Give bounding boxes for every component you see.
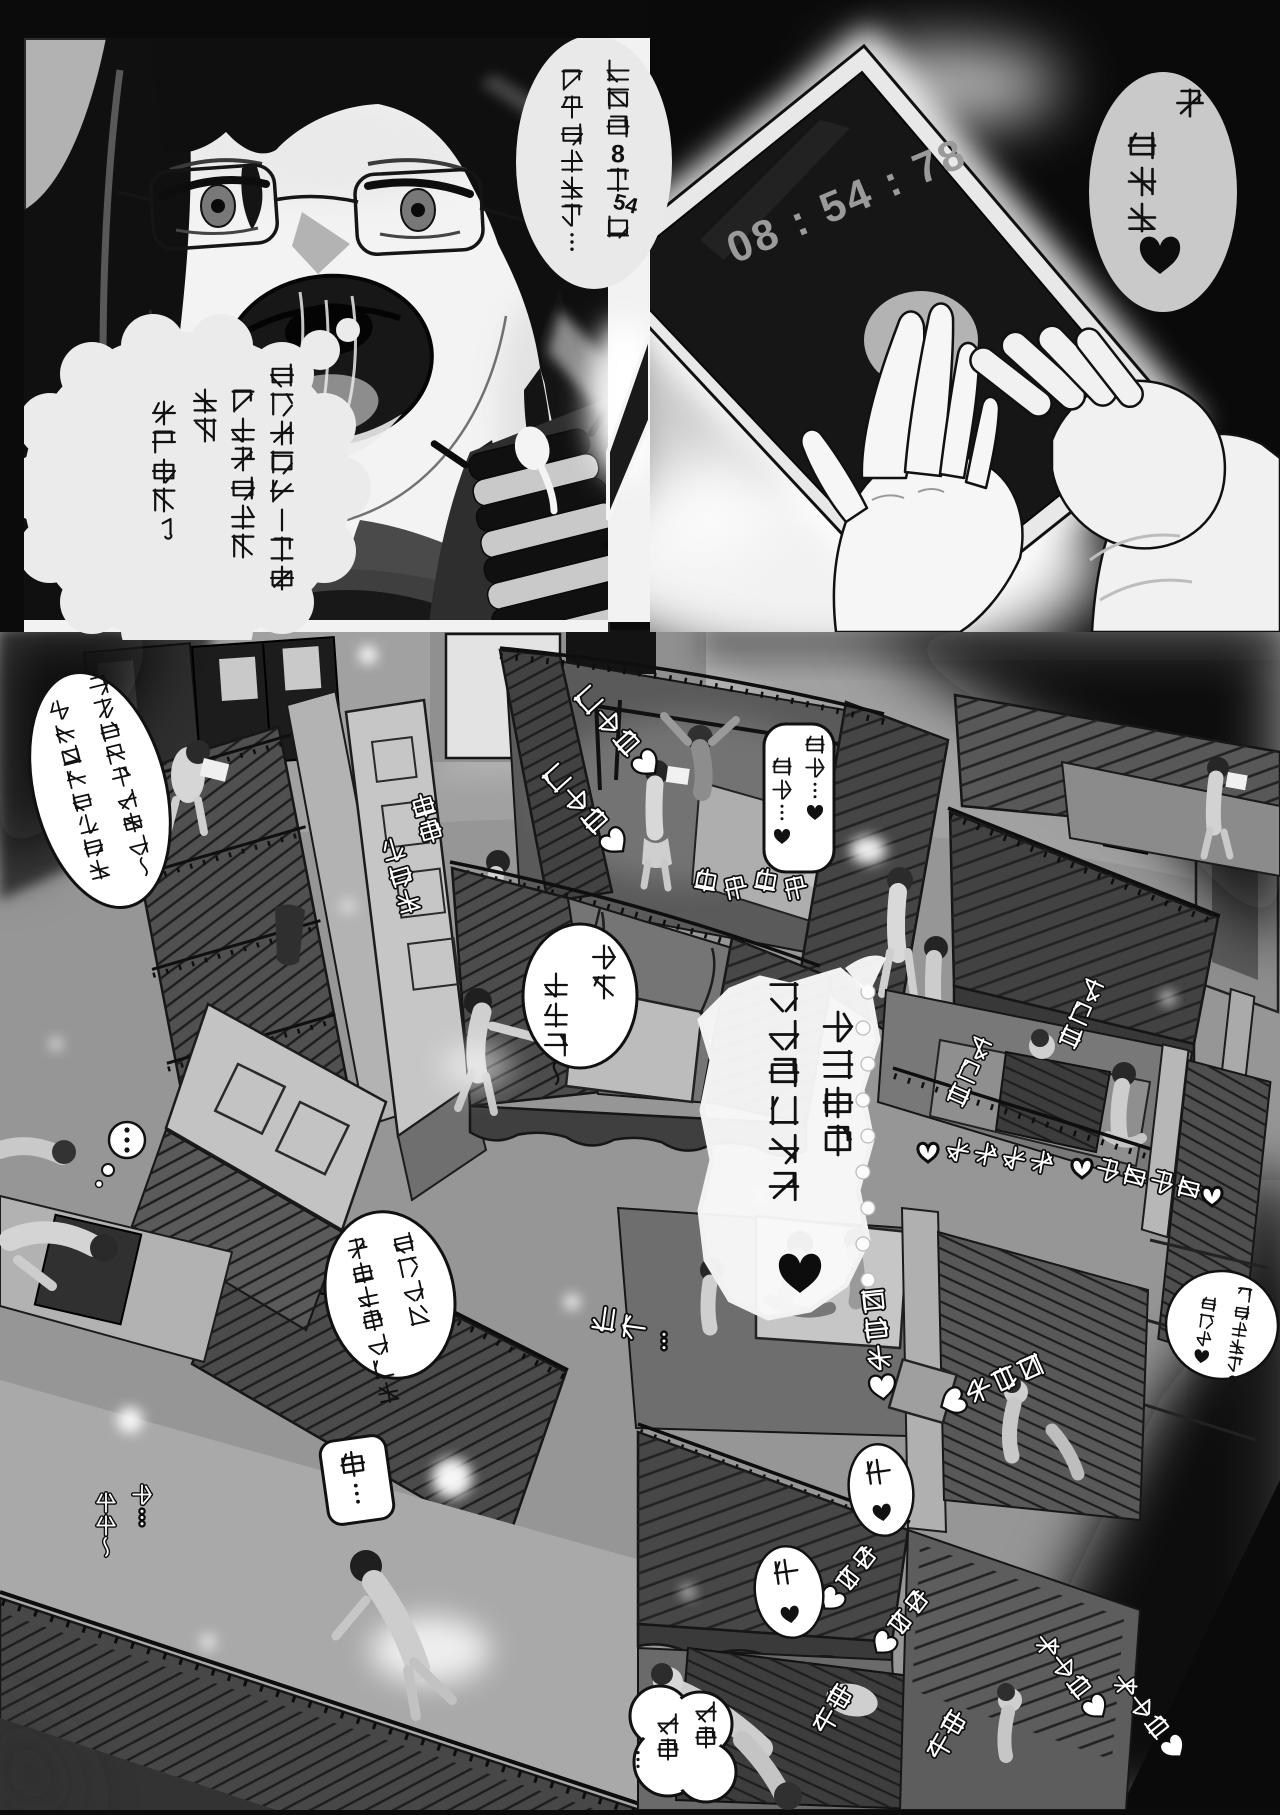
svg-text:8: 8 — [611, 141, 625, 169]
